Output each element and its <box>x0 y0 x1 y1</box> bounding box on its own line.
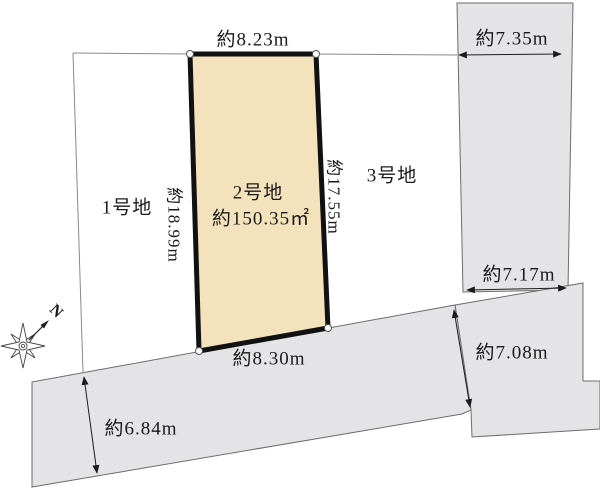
plan-svg <box>0 0 600 490</box>
lot2-vertex-top-right <box>313 51 320 58</box>
lot2-vertex-bottom-right <box>325 325 332 332</box>
compass-hub <box>19 342 27 350</box>
lot1-left-boundary <box>73 53 83 373</box>
lot3-top-boundary <box>316 54 457 55</box>
lot2-area-label: 約150.35㎡ <box>212 204 310 231</box>
dim-lot2-right: 約17.55m <box>324 159 349 234</box>
lot3-label: 3号地 <box>367 161 418 188</box>
lot2-vertex-top-left <box>187 51 194 58</box>
dim-road-west: 約6.84m <box>104 414 177 441</box>
dim-lot2-top: 約8.23m <box>216 25 289 52</box>
lot2-vertex-bottom-left <box>196 348 203 355</box>
dim-road-east: 約7.08m <box>475 338 548 365</box>
lot2-label: 2号地 <box>233 178 284 205</box>
compass-north-arrow-shaft <box>29 325 44 340</box>
dim-lot2-left: 約18.99m <box>164 187 189 262</box>
lot1-top-boundary <box>73 53 190 54</box>
dim-east-parcel-top: 約7.35m <box>475 24 548 51</box>
lot1-label: 1号地 <box>102 193 153 220</box>
dim-lot2-bottom: 約8.30m <box>232 344 305 371</box>
compass-rose <box>0 320 49 370</box>
land-plot-diagram: 約8.23m 約7.35m 1号地 2号地 約150.35㎡ 3号地 約18.9… <box>0 0 600 490</box>
dim-east-parcel-bottom: 約7.17m <box>482 260 555 287</box>
